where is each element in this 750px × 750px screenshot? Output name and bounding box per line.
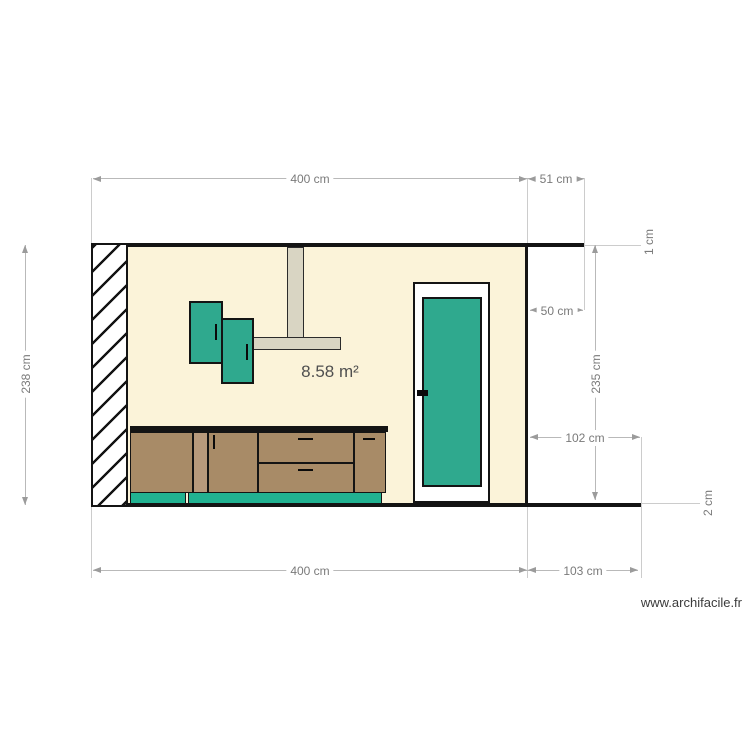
arrow-right-icon (576, 176, 584, 182)
hood-canopy (253, 337, 341, 350)
base-cabinet (130, 432, 386, 493)
arrow-up-icon (22, 245, 28, 253)
side-cabinet-handle (363, 438, 375, 440)
arrow-left-icon (528, 567, 536, 573)
kickboard-left (130, 492, 186, 504)
dim-label-inner-height: 235 cm (588, 350, 604, 397)
arrow-left-icon (93, 567, 101, 573)
extension-line (584, 178, 585, 310)
arrow-right-icon (632, 434, 640, 440)
arrow-right-icon (519, 567, 527, 573)
watermark-link[interactable]: www.archifacile.fr (641, 595, 742, 610)
door-panel (422, 297, 482, 487)
base-door-handle (213, 435, 215, 449)
extension-line (91, 507, 92, 578)
arrow-right-icon (630, 567, 638, 573)
dim-label-floor: 2 cm (700, 486, 716, 520)
arrow-left-icon (530, 434, 538, 440)
dim-label-upper-right: 50 cm (537, 303, 578, 319)
extension-line (527, 178, 528, 243)
extension-line (91, 178, 92, 243)
elevation-plan-canvas: 8.58 m² 400 cm 51 cm 1 cm 238 cm 50 cm 2… (0, 0, 750, 750)
hatched-wall-section (91, 243, 128, 507)
extension-line (641, 437, 642, 578)
cabinet-divider (353, 433, 355, 492)
wall-right-edge (525, 245, 528, 503)
dim-label-top-width: 400 cm (286, 171, 333, 187)
cabinet-handle (246, 344, 248, 360)
arrow-up-icon (592, 245, 598, 253)
drawer-handle (298, 469, 313, 471)
dim-label-bottom-right: 103 cm (559, 563, 606, 579)
dim-label-top-right: 51 cm (536, 171, 577, 187)
arrow-right-icon (519, 176, 527, 182)
dim-label-bottom-width: 400 cm (286, 563, 333, 579)
cabinet-handle (215, 324, 217, 340)
cabinet-filler-panel (194, 433, 207, 492)
wall-cabinet-right (221, 318, 254, 384)
leader-line-floor (642, 503, 702, 504)
hood-duct (287, 247, 304, 338)
ceiling-line (91, 243, 584, 247)
arrow-left-icon (93, 176, 101, 182)
dim-label-lower-right: 102 cm (561, 430, 608, 446)
room-area-label: 8.58 m² (301, 362, 359, 382)
drawer-handle (298, 438, 313, 440)
dim-label-ceiling: 1 cm (641, 225, 657, 259)
arrow-down-icon (592, 492, 598, 500)
kickboard-right (188, 492, 382, 504)
arrow-down-icon (22, 497, 28, 505)
wall-cabinet-left (189, 301, 223, 364)
door-handle (417, 390, 428, 396)
drawer-divider (258, 462, 353, 464)
door-frame (413, 282, 490, 503)
dim-label-left-height: 238 cm (18, 350, 34, 397)
cabinet-divider (207, 433, 209, 492)
